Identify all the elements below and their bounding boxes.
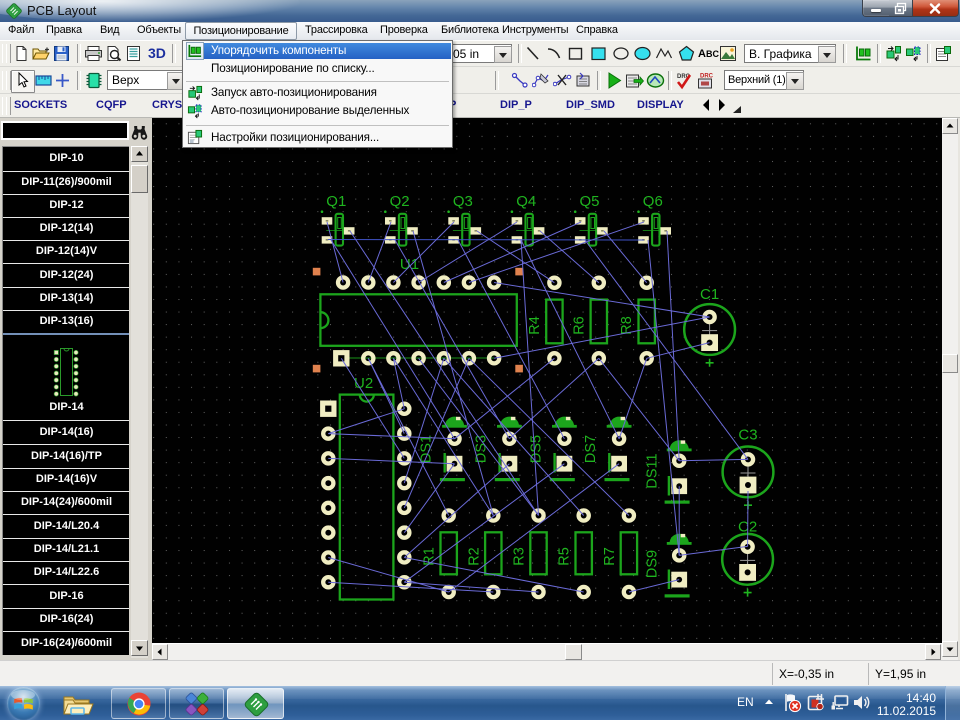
svg-text:C1: C1 xyxy=(700,286,719,303)
svg-text:R2: R2 xyxy=(466,547,482,566)
svg-text:R3: R3 xyxy=(512,547,528,566)
svg-text:R6: R6 xyxy=(571,316,587,335)
svg-text:R7: R7 xyxy=(602,547,618,566)
svg-text:DS7: DS7 xyxy=(583,435,599,463)
svg-text:Q4: Q4 xyxy=(516,193,536,210)
svg-text:Q1: Q1 xyxy=(326,193,346,210)
svg-text:Q6: Q6 xyxy=(643,193,663,210)
svg-text:C3: C3 xyxy=(738,427,757,444)
svg-text:Q3: Q3 xyxy=(453,193,473,210)
svg-text:DS5: DS5 xyxy=(528,435,544,463)
svg-text:DS1: DS1 xyxy=(419,435,435,463)
svg-text:Q2: Q2 xyxy=(390,193,410,210)
svg-text:DS9: DS9 xyxy=(645,550,661,578)
svg-text:R5: R5 xyxy=(557,547,573,566)
svg-text:DS11: DS11 xyxy=(645,453,661,488)
svg-text:R4: R4 xyxy=(527,316,543,335)
svg-text:Q5: Q5 xyxy=(579,193,599,210)
svg-text:DS3: DS3 xyxy=(473,435,489,463)
